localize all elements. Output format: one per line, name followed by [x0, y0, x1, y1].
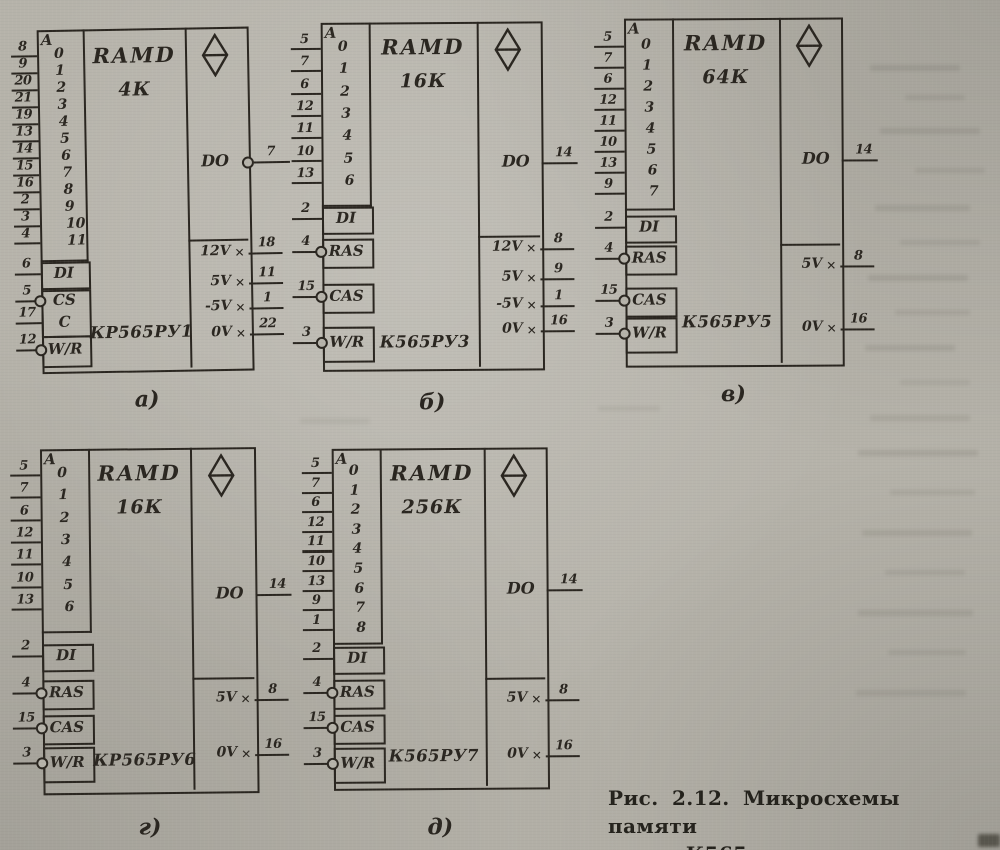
power-arrow-icon: ✕	[532, 749, 542, 761]
power-arrow-icon: ✕	[527, 299, 537, 311]
inversion-circle-icon	[326, 687, 338, 699]
address-pin-line	[302, 491, 332, 493]
control-pin-line	[304, 727, 329, 729]
address-bit-label: 4	[59, 115, 69, 129]
control-label: DI	[333, 651, 381, 666]
chip-diagram-v: A50716212311410513697DI2RAS4CAS15W/R3DO1…	[624, 17, 885, 413]
address-bit-label: 2	[351, 503, 361, 517]
control-pin-number: 2	[292, 202, 319, 216]
output-label: DO	[193, 585, 243, 602]
address-pin-number: 11	[11, 549, 38, 563]
address-pin-number: 15	[13, 159, 36, 173]
power-pin-line	[541, 305, 575, 307]
ghost-mark	[868, 275, 968, 281]
control-label: CAS	[43, 720, 91, 736]
address-pin-number: 6	[291, 78, 318, 92]
control-pin-line	[293, 342, 318, 344]
power-pin-number: 9	[542, 262, 574, 276]
address-pin-number: 6	[594, 73, 621, 87]
address-pin-number: 13	[292, 167, 319, 181]
power-pin-number: 16	[543, 314, 575, 328]
power-label: 0V	[192, 325, 232, 340]
chip-diagram-g: A507162123114105136DI2RAS4CAS15W/R3DO145…	[40, 447, 300, 842]
address-header-label: A	[41, 33, 53, 48]
address-pin-line	[594, 88, 624, 90]
address-pin-number: 13	[595, 157, 622, 171]
control-pin-line	[292, 218, 322, 220]
address-pin-number: 11	[594, 115, 621, 129]
address-bit-label: 3	[341, 107, 351, 121]
inversion-circle-icon	[327, 722, 339, 734]
address-bit-label: 0	[349, 464, 359, 478]
power-arrow-icon: ✕	[236, 328, 246, 340]
power-label: 5V	[782, 257, 822, 271]
control-pin-line	[13, 727, 38, 729]
power-label: 12V	[480, 240, 522, 254]
address-pin-line	[595, 172, 625, 174]
control-pin-number: 15	[292, 280, 319, 294]
memory-diamond-icon	[206, 453, 236, 497]
address-pin-number: 6	[302, 496, 329, 510]
address-pin-number: 11	[302, 535, 329, 549]
control-pin-number: 3	[596, 317, 623, 331]
inversion-circle-icon	[327, 758, 339, 770]
address-pin-line	[594, 46, 624, 48]
subfigure-label: в)	[626, 383, 841, 406]
control-label: CAS	[322, 289, 370, 304]
power-pin-number: 8	[842, 249, 874, 263]
output-pin-line	[254, 161, 290, 164]
page-corner-smudge	[978, 834, 1000, 847]
output-pin-number: 14	[547, 146, 579, 160]
ghost-mark	[862, 530, 972, 536]
power-label: -5V	[191, 299, 231, 314]
chip-type-label: RAMD	[369, 36, 477, 58]
chip-capacity-label: 64К	[672, 68, 779, 88]
output-pin-line	[542, 162, 578, 164]
address-bit-label: 6	[345, 173, 355, 187]
output-label: DO	[480, 153, 530, 169]
control-pin-line	[13, 692, 38, 694]
address-bit-label: 9	[65, 200, 75, 214]
address-pin-number: 5	[594, 31, 621, 45]
control-label: W/R	[43, 755, 91, 771]
caption-line-2: серии К565	[608, 840, 998, 850]
address-bit-label: 4	[62, 555, 72, 569]
power-pin-line	[840, 265, 874, 267]
address-bit-label: 6	[61, 149, 71, 163]
control-label: DI	[41, 265, 87, 281]
address-bit-label: 8	[63, 183, 73, 197]
power-arrow-icon: ✕	[241, 693, 251, 705]
ghost-mark	[888, 650, 966, 655]
ghost-mark	[890, 490, 975, 495]
control-pin-number: 6	[15, 257, 38, 271]
control-pin-number: 3	[13, 746, 40, 760]
power-pin-line	[540, 248, 574, 250]
control-pin-line	[304, 763, 329, 765]
control-pin-line	[293, 296, 318, 298]
address-bit-label: 1	[339, 62, 349, 76]
address-bit-label: 6	[65, 600, 75, 614]
power-pin-line	[541, 330, 575, 332]
power-label: 5V	[480, 270, 522, 284]
control-pin-number: 4	[303, 676, 330, 690]
control-pin-line	[13, 762, 38, 764]
power-label: 5V	[194, 690, 236, 704]
address-pin-line	[291, 137, 321, 139]
address-pin-number: 6	[11, 504, 38, 518]
address-bit-label: 5	[60, 132, 70, 146]
address-pin-line	[14, 242, 40, 245]
ghost-mark	[858, 450, 978, 456]
control-pin-line	[12, 655, 42, 658]
address-pin-number: 21	[12, 91, 35, 105]
control-label: DI	[625, 219, 673, 234]
address-pin-line	[302, 472, 332, 474]
address-bit-label: 5	[63, 578, 73, 592]
address-pin-line	[302, 550, 332, 552]
address-pin-number: 10	[595, 136, 622, 150]
address-pin-line	[303, 589, 333, 591]
address-pin-number: 13	[303, 575, 330, 589]
control-label: W/R	[626, 325, 674, 340]
address-pin-number: 5	[10, 459, 37, 473]
memory-diamond-icon	[499, 454, 529, 498]
control-pin-number: 4	[595, 242, 622, 256]
control-label: DI	[42, 648, 90, 664]
address-bit-label: 10	[66, 216, 86, 230]
address-pin-number: 8	[11, 40, 34, 54]
address-pin-line	[302, 531, 332, 533]
power-pin-line	[841, 328, 875, 330]
address-pin-number: 12	[291, 100, 318, 114]
address-pin-number: 9	[595, 178, 622, 192]
address-pin-number: 20	[11, 74, 34, 88]
control-pin-number: 3	[304, 747, 331, 761]
control-pin-number: 15	[595, 284, 622, 298]
subfigure-label: д)	[334, 815, 546, 838]
chip-capacity-label: 4К	[84, 80, 186, 101]
inversion-circle-icon	[618, 253, 630, 265]
power-pin-number: 1	[542, 289, 574, 303]
address-pin-number: 12	[11, 526, 38, 540]
control-pin-line	[595, 258, 620, 260]
ghost-mark	[915, 168, 985, 173]
address-pin-number: 2	[13, 193, 36, 207]
power-pin-line	[255, 699, 289, 702]
address-bit-label: 7	[62, 166, 72, 180]
output-pin-number: 14	[261, 578, 293, 592]
output-pin-line	[547, 589, 583, 591]
chip-diagram-a: A809120221319413514615716829310411DI6CS5…	[37, 26, 296, 420]
control-pin-line	[292, 251, 317, 253]
address-pin-number: 10	[291, 144, 318, 158]
power-separator-line	[485, 677, 545, 680]
chip-type-label: RAMD	[88, 462, 190, 484]
power-pin-line	[540, 278, 574, 280]
ghost-mark	[870, 415, 970, 421]
power-arrow-icon: ✕	[235, 302, 245, 314]
subfigure-label: а)	[43, 387, 251, 413]
figure-caption: Рис. 2.12. Микросхемы памяти серии К565	[608, 784, 998, 850]
ghost-mark	[900, 380, 970, 385]
power-arrow-icon: ✕	[827, 323, 837, 335]
address-bit-label: 0	[338, 40, 348, 54]
address-bit-label: 6	[648, 164, 658, 178]
output-pin-line	[255, 594, 291, 597]
power-pin-line	[545, 699, 579, 701]
inversion-circle-icon	[316, 337, 328, 349]
inversion-circle-icon	[315, 291, 327, 303]
chip-diagram-d: A5071621231141051369718DI2RAS4CAS15W/R3D…	[332, 447, 591, 837]
power-pin-number: 16	[257, 738, 289, 752]
power-arrow-icon: ✕	[526, 272, 536, 284]
power-label: 0V	[488, 747, 528, 761]
address-bit-label: 3	[644, 101, 654, 115]
memory-diamond-icon	[200, 33, 231, 78]
address-pin-number: 7	[594, 52, 621, 66]
inversion-circle-icon	[618, 295, 630, 307]
output-pin-number: 14	[848, 143, 880, 157]
address-bit-label: 0	[641, 38, 651, 52]
address-bit-label: 3	[61, 533, 71, 547]
memory-diamond-icon	[493, 28, 523, 72]
subfigure-label: г)	[44, 815, 256, 839]
caption-line-1: Рис. 2.12. Микросхемы памяти	[608, 784, 998, 840]
address-pin-line	[11, 541, 41, 544]
address-bit-label: 11	[67, 233, 87, 247]
address-pin-line	[594, 109, 624, 111]
address-pin-line	[12, 608, 42, 611]
ghost-mark	[905, 95, 965, 100]
address-pin-number: 5	[291, 33, 318, 47]
chip-type-label: RAMD	[380, 462, 484, 484]
control-pin-line	[16, 349, 37, 352]
address-pin-number: 7	[302, 477, 329, 491]
address-pin-line	[595, 193, 625, 195]
address-bit-label: 4	[342, 129, 352, 143]
output-label: DO	[189, 153, 229, 170]
chip-capacity-label: 256К	[380, 498, 484, 518]
inversion-circle-icon	[242, 156, 254, 168]
subfigure-label: б)	[323, 390, 541, 414]
control-pin-number: 17	[15, 306, 38, 320]
address-bit-label: 3	[352, 522, 362, 536]
address-pin-number: 5	[302, 457, 329, 471]
address-bit-label: 7	[355, 601, 365, 615]
power-pin-line	[546, 755, 580, 757]
power-arrow-icon: ✕	[234, 247, 244, 259]
address-header-label: A	[44, 452, 56, 467]
address-pin-line	[10, 474, 40, 477]
address-header-label: A	[325, 26, 337, 41]
address-bit-label: 3	[57, 98, 67, 112]
inversion-circle-icon	[36, 757, 48, 769]
address-pin-number: 16	[13, 176, 36, 190]
chip-part-number: КР565РУ1	[90, 324, 188, 342]
address-pin-number: 9	[11, 57, 34, 71]
power-pin-number: 16	[843, 312, 875, 326]
control-pin-number: 2	[595, 211, 622, 225]
ghost-mark	[598, 406, 660, 411]
address-pin-line	[302, 511, 332, 513]
address-pin-line	[10, 497, 40, 500]
address-bit-label: 0	[54, 47, 64, 61]
control-pin-line	[596, 333, 621, 335]
power-separator-line	[780, 244, 840, 247]
power-pin-line	[249, 307, 283, 310]
power-pin-line	[255, 754, 289, 757]
control-label: RAS	[322, 244, 370, 259]
address-pin-number: 7	[10, 482, 37, 496]
address-bit-label: 0	[57, 466, 67, 480]
control-label: RAS	[625, 250, 673, 265]
address-pin-number: 10	[11, 571, 38, 585]
control-label: RAS	[42, 685, 90, 701]
address-pin-line	[11, 519, 41, 522]
address-bit-label: 2	[340, 84, 350, 98]
power-pin-number: 8	[256, 683, 288, 697]
address-header-label: A	[336, 452, 348, 467]
control-pin-number: 3	[293, 326, 320, 340]
chip-capacity-label: 16К	[88, 498, 190, 518]
output-label: DO	[782, 151, 830, 167]
scanned-book-page: A809120221319413514615716829310411DI6CS5…	[0, 0, 1000, 850]
control-pin-line	[303, 692, 328, 694]
ghost-mark	[875, 205, 970, 211]
ghost-mark	[865, 345, 955, 351]
chip-type-label: RAMD	[672, 32, 779, 54]
control-label: CAS	[625, 292, 673, 307]
chip-part-number: КР565РУ6	[93, 752, 191, 770]
address-pin-number: 9	[303, 594, 330, 608]
address-pin-number: 14	[13, 142, 36, 156]
output-pin-number: 7	[255, 145, 287, 160]
address-pin-number: 4	[14, 227, 37, 241]
control-label: W/R	[334, 756, 382, 771]
control-pin-number: 15	[303, 711, 330, 725]
address-pin-line	[292, 182, 322, 184]
control-pin-line	[303, 658, 333, 660]
ghost-mark	[300, 418, 370, 424]
control-label: CAS	[334, 720, 382, 735]
power-arrow-icon: ✕	[526, 242, 536, 254]
ghost-mark	[885, 570, 965, 575]
address-bit-label: 5	[344, 151, 354, 165]
address-pin-line	[11, 586, 41, 589]
address-pin-number: 13	[11, 593, 38, 607]
control-label: W/R	[323, 335, 371, 350]
control-pin-number: 2	[303, 642, 330, 656]
power-pin-line	[249, 252, 283, 255]
address-bit-label: 8	[356, 620, 366, 634]
address-pin-number: 11	[291, 122, 318, 136]
ghost-mark	[895, 310, 970, 315]
power-pin-line	[249, 282, 283, 285]
power-pin-number: 16	[548, 739, 580, 753]
power-pin-number: 8	[547, 683, 579, 697]
control-pin-number: 4	[12, 676, 39, 690]
power-label: 0V	[783, 320, 823, 334]
ghost-mark	[858, 610, 973, 616]
address-pin-line	[595, 130, 625, 132]
address-pin-line	[303, 609, 333, 611]
ghost-mark	[856, 690, 966, 696]
inversion-circle-icon	[619, 328, 631, 340]
address-pin-line	[291, 48, 321, 50]
address-bit-label: 1	[350, 483, 360, 497]
power-label: 12V	[190, 244, 230, 259]
control-pin-number: 15	[13, 711, 40, 725]
power-label: 0V	[481, 322, 523, 336]
address-pin-line	[594, 67, 624, 69]
inversion-circle-icon	[315, 246, 327, 258]
power-pin-number: 18	[250, 236, 282, 251]
address-pin-number: 13	[12, 125, 35, 139]
power-arrow-icon: ✕	[527, 324, 537, 336]
control-pin-line	[15, 273, 41, 276]
power-pin-line	[250, 333, 284, 336]
control-pin-line	[16, 322, 42, 325]
address-bit-label: 4	[352, 542, 362, 556]
power-label: 0V	[195, 745, 237, 759]
control-label: RAS	[333, 685, 381, 700]
power-arrow-icon: ✕	[826, 260, 836, 272]
address-bit-label: 1	[642, 59, 652, 73]
control-pin-number: 4	[292, 235, 319, 249]
ghost-mark	[900, 240, 980, 245]
ghost-mark	[880, 128, 980, 134]
address-pin-number: 7	[291, 55, 318, 69]
control-pin-number: 2	[12, 639, 39, 653]
memory-diamond-icon	[794, 24, 824, 68]
address-bit-label: 7	[649, 185, 659, 199]
address-header-label: A	[628, 22, 640, 37]
address-bit-label: 5	[647, 143, 657, 157]
ghost-mark	[870, 65, 960, 71]
power-label: 5V	[487, 691, 527, 705]
control-pin-line	[15, 300, 36, 303]
address-pin-line	[595, 151, 625, 153]
address-pin-number: 19	[12, 108, 35, 122]
address-bit-label: 1	[55, 64, 65, 78]
control-label: DI	[322, 211, 370, 226]
chip-diagram-b: A507162123114105136DI2RAS4CAS15W/R3DO141…	[321, 21, 586, 418]
address-pin-line	[291, 70, 321, 72]
chip-part-number: К565РУ5	[676, 314, 779, 331]
power-pin-number: 22	[252, 317, 284, 332]
inversion-circle-icon	[35, 687, 47, 699]
power-arrow-icon: ✕	[241, 748, 251, 760]
output-label: DO	[487, 580, 535, 596]
address-pin-line	[303, 629, 333, 631]
address-pin-line	[291, 115, 321, 117]
output-pin-number: 14	[553, 573, 585, 587]
address-pin-line	[291, 93, 321, 95]
power-pin-number: 8	[542, 232, 574, 246]
chip-part-number: К565РУ3	[373, 334, 477, 351]
chip-type-label: RAMD	[83, 44, 185, 67]
address-bit-label: 2	[56, 81, 66, 95]
address-pin-line	[11, 564, 41, 567]
inversion-circle-icon	[36, 722, 48, 734]
address-pin-number: 3	[14, 210, 37, 224]
address-bit-label: 6	[354, 581, 364, 595]
control-label: W/R	[42, 341, 88, 357]
power-label: -5V	[481, 297, 523, 311]
control-pin-line	[595, 227, 625, 229]
